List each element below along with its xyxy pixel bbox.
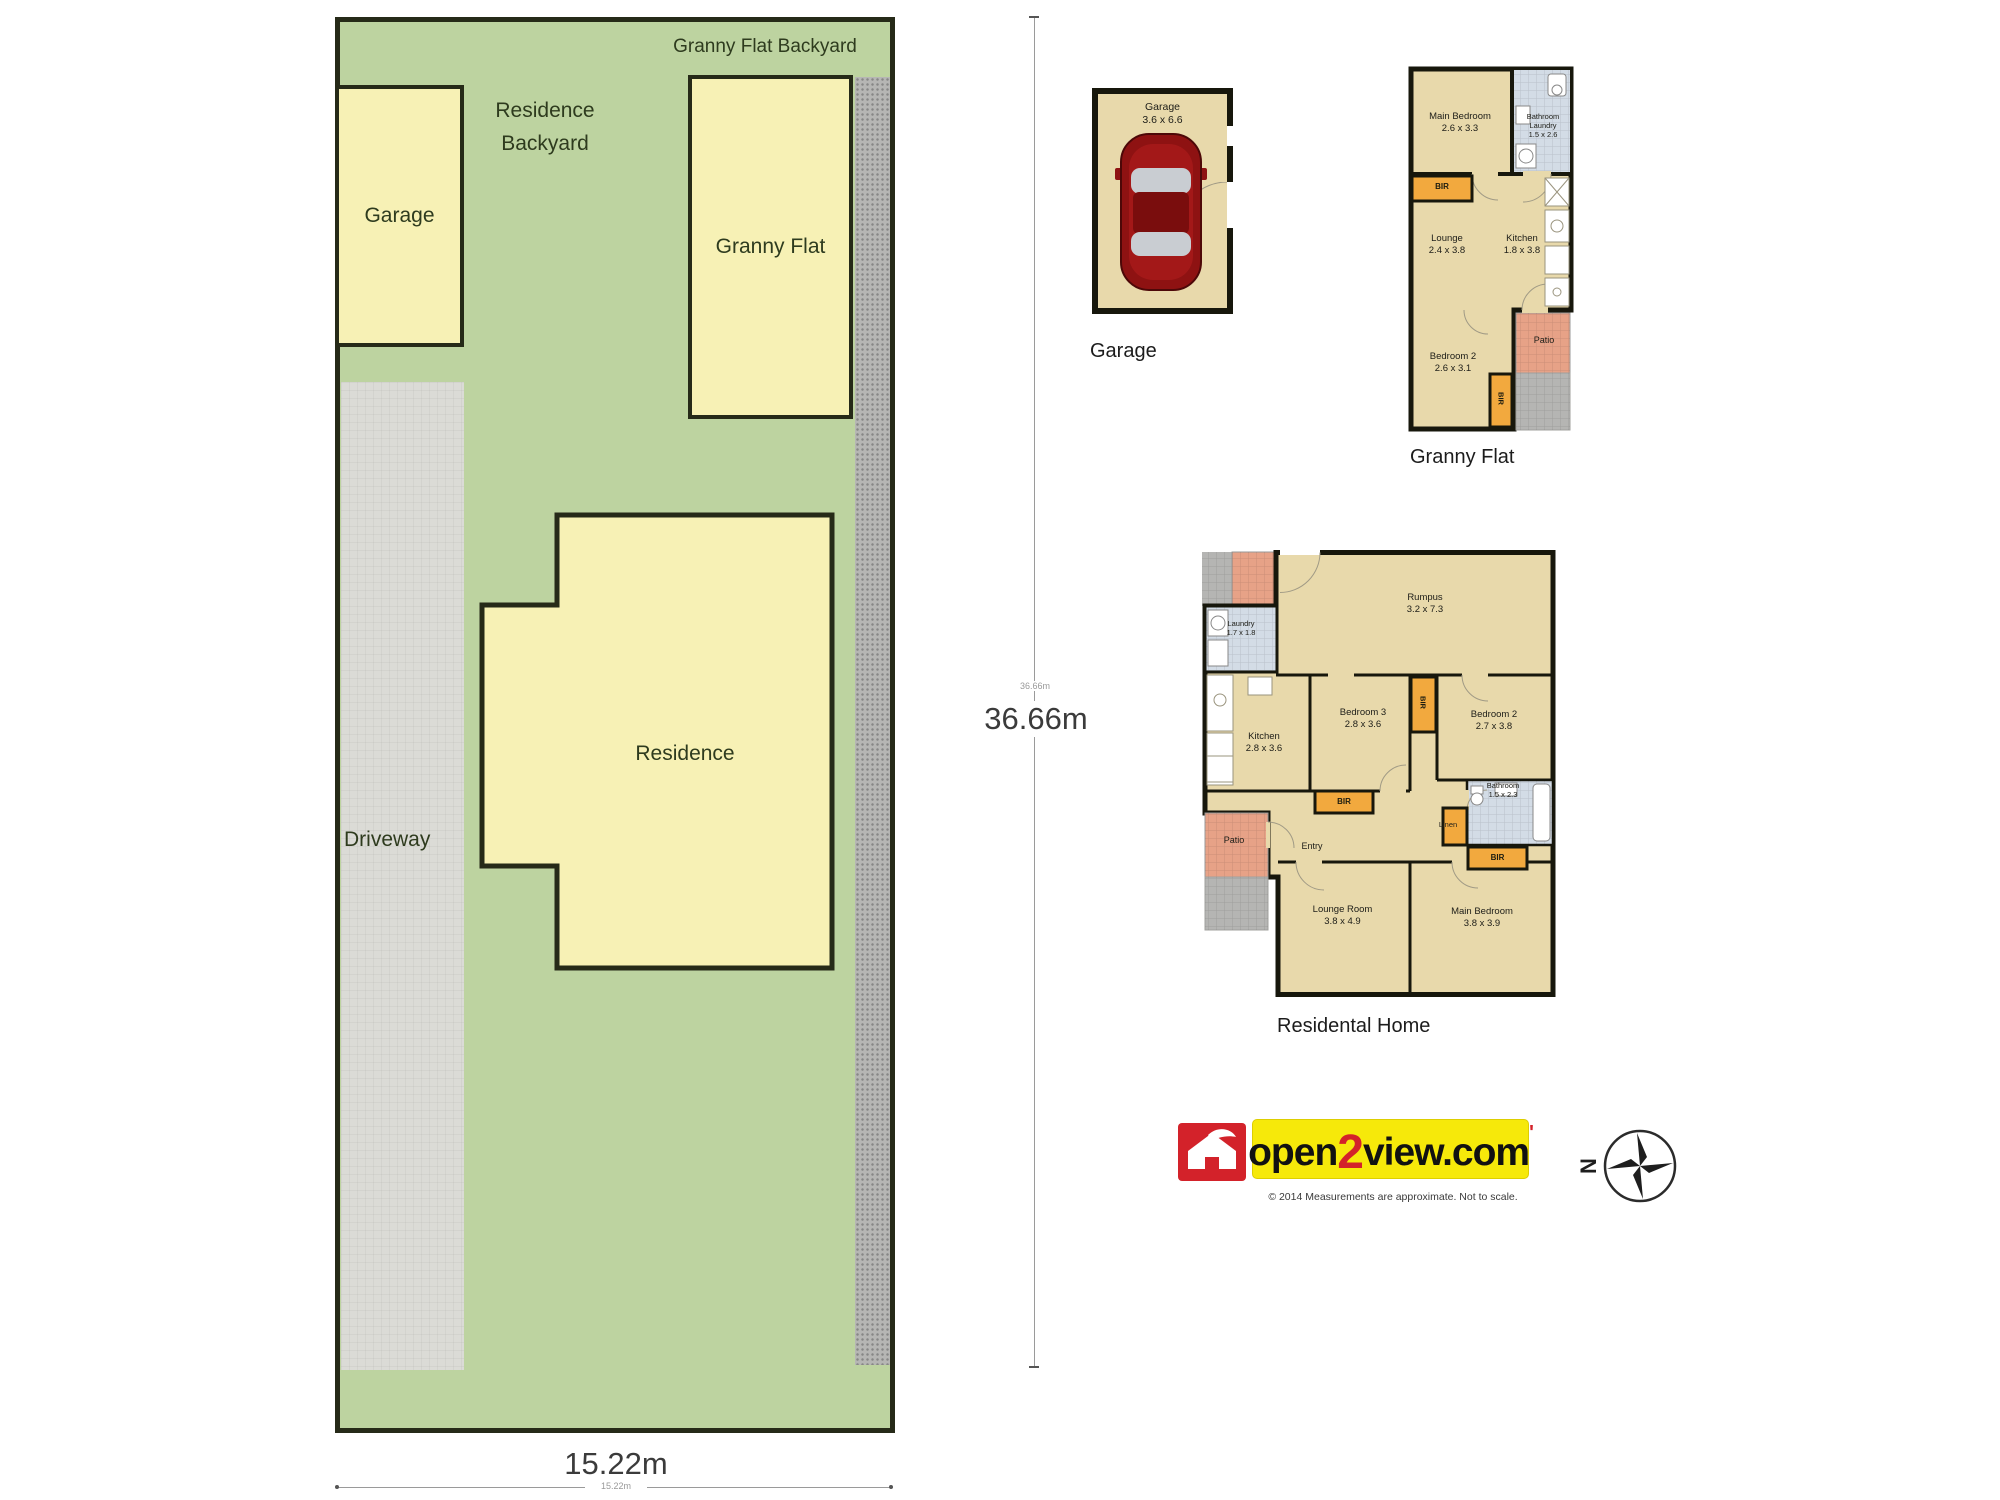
site-driveway-label: Driveway bbox=[344, 828, 454, 852]
copyright-tagline: © 2014 Measurements are approximate. Not… bbox=[1248, 1191, 1538, 1203]
site-driveway bbox=[341, 382, 464, 1370]
gf-lounge-label: Lounge 2.4 x 3.8 bbox=[1408, 233, 1486, 256]
depth-dimension-line bbox=[1034, 17, 1035, 1368]
site-granny-flat-label: Granny Flat bbox=[716, 235, 826, 259]
granny-flat-plan-title: Granny Flat bbox=[1410, 446, 1514, 469]
site-residence-label: Residence bbox=[625, 742, 745, 766]
rh-main-bedroom-label: Main Bedroom 3.8 x 3.9 bbox=[1434, 906, 1530, 929]
dim-tick-bottom bbox=[1029, 1366, 1039, 1368]
rh-linen-label: Linen bbox=[1428, 820, 1468, 829]
open2view-logo: open2view.com' bbox=[1252, 1119, 1529, 1179]
gf-bir-label: BIR bbox=[1412, 182, 1472, 191]
gf-bir2-label: BIR bbox=[1497, 387, 1506, 411]
dim-tick-top bbox=[1029, 16, 1039, 18]
rh-kitchen-label: Kitchen 2.8 x 3.6 bbox=[1229, 731, 1299, 754]
site-gravel-strip bbox=[855, 77, 890, 1365]
dim-dot-right bbox=[889, 1485, 893, 1489]
site-granny-flat-backyard-label: Granny Flat Backyard bbox=[665, 36, 865, 58]
garage-room-dims: 3.6 x 6.6 bbox=[1098, 115, 1227, 127]
garage-window-opening bbox=[1227, 126, 1233, 146]
rh-bir-bed3-label: BIR bbox=[1315, 797, 1373, 806]
gf-patio-label: Patio bbox=[1518, 335, 1570, 347]
site-garage: Garage bbox=[335, 85, 464, 347]
rh-patio-label: Patio bbox=[1206, 835, 1262, 847]
garage-floorplan: Garage 3.6 x 6.6 bbox=[1092, 88, 1233, 314]
compass-icon bbox=[1600, 1126, 1680, 1206]
gf-main-bedroom-label: Main Bedroom 2.6 x 3.3 bbox=[1411, 111, 1509, 134]
garage-door-opening bbox=[1227, 182, 1233, 228]
logo-wordmark: open2view.com' bbox=[1248, 1122, 1533, 1177]
rh-lounge-room-label: Lounge Room 3.8 x 4.9 bbox=[1295, 904, 1390, 927]
open2view-logo-icon bbox=[1178, 1123, 1246, 1181]
rh-bir-mainbed-label: BIR bbox=[1468, 853, 1527, 862]
residential-plan-title: Residental Home bbox=[1277, 1015, 1430, 1038]
garage-room-label: Garage bbox=[1098, 102, 1227, 114]
depth-dimension-label: 36.66m bbox=[975, 701, 1097, 737]
gf-bedroom2-label: Bedroom 2 2.6 x 3.1 bbox=[1412, 351, 1494, 374]
rh-bir-vertical-label: BIR bbox=[1419, 690, 1428, 716]
rh-rumpus-label: Rumpus 3.2 x 7.3 bbox=[1385, 592, 1465, 615]
garage-plan-title: Garage bbox=[1090, 340, 1157, 363]
compass-north-label: N bbox=[1576, 1153, 1602, 1179]
residential-floorplan bbox=[1200, 550, 1556, 997]
depth-dimension-small: 36.66m bbox=[1002, 681, 1068, 691]
site-granny-flat: Granny Flat bbox=[688, 75, 853, 419]
rh-laundry-label: Laundry 1.7 x 1.8 bbox=[1212, 619, 1270, 637]
rh-bedroom2-label: Bedroom 2 2.7 x 3.8 bbox=[1454, 709, 1534, 732]
floorplan-sheet: Garage Granny Flat Residence Granny Flat… bbox=[0, 0, 2000, 1500]
width-dimension-label: 15.22m bbox=[555, 1446, 677, 1482]
car-icon bbox=[1115, 132, 1207, 292]
gf-kitchen-label: Kitchen 1.8 x 3.8 bbox=[1489, 233, 1555, 256]
dove-house-icon bbox=[1178, 1123, 1246, 1181]
width-dimension-small: 15.22m bbox=[585, 1481, 647, 1491]
site-garage-label: Garage bbox=[364, 204, 434, 228]
site-residence-backyard-label: Residence Backyard bbox=[480, 94, 610, 160]
gf-bathroom-label: Bathroom Laundry 1.5 x 2.6 bbox=[1517, 112, 1569, 139]
rh-bathroom-label: Bathroom 1.5 x 2.3 bbox=[1470, 781, 1536, 799]
rh-entry-label: Entry bbox=[1288, 841, 1336, 853]
rh-bedroom3-label: Bedroom 3 2.8 x 3.6 bbox=[1323, 707, 1403, 730]
dim-dot-left bbox=[335, 1485, 339, 1489]
